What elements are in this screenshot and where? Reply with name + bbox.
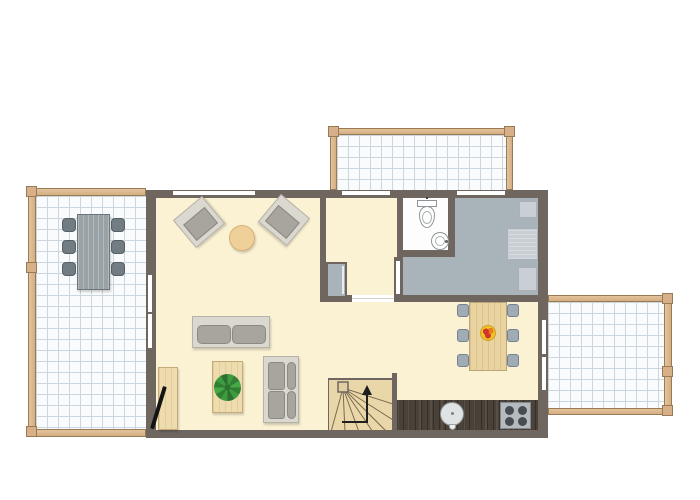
chaise-sofa [263,356,299,423]
left-terrace-rail-left [28,188,36,437]
closet-door-line [342,266,344,294]
dining-chair [507,329,519,342]
terrace-door-right-lower [542,357,546,390]
railing-post [328,126,339,137]
bedroom-cabinet [518,267,537,291]
sink-drain [451,412,454,415]
railing-post [662,405,673,416]
outdoor-chair [62,218,76,232]
railing-post [504,126,515,137]
floor-plan-canvas [0,0,700,500]
stove-burner [518,406,527,415]
outer-wall-right [538,190,548,438]
top-balcony-rail-right [506,128,513,190]
bedroom-floor-entry [400,257,455,295]
sofa [192,316,270,348]
bedroom-door-opening [396,261,400,294]
sink-tap [445,240,448,243]
bedroom-cabinet [519,201,537,218]
bathroom-sink [431,232,449,250]
outdoor-chair [111,262,125,276]
left-terrace-rail-bottom [28,429,146,437]
terrace-door-left-upper [148,275,152,312]
dining-chair [507,304,519,317]
round-side-table [229,225,255,251]
stove-burner [518,417,527,426]
wall-bathroom-right [448,198,455,257]
stove-burner [505,417,514,426]
dining-chair [457,354,469,367]
dining-chair [457,329,469,342]
wall-bathroom-left [397,198,403,257]
stair-newel-post [338,382,348,392]
top-balcony-decking [337,135,506,190]
bedroom-cabinet-large [507,228,538,260]
railing-post [26,426,37,437]
railing-post [26,186,37,197]
outdoor-chair [62,240,76,254]
top-balcony-rail-top [330,128,513,135]
outdoor-chair [111,218,125,232]
kitchen-sink [440,402,464,426]
terrace-door-right-upper [542,320,546,354]
toilet [417,200,437,229]
fruit-bowl [480,325,496,341]
top-balcony-rail-left [330,128,337,190]
outdoor-chair [62,262,76,276]
balcony-door-hallway [342,191,390,195]
potted-plant [214,374,241,401]
outdoor-chair [111,240,125,254]
right-terrace-rail-right [664,295,672,415]
left-terrace-rail-top [28,188,146,196]
wall-bathroom-bottom [397,250,455,257]
railing-post [662,293,673,304]
right-terrace-rail-bottom [548,408,672,415]
chaise-cushion [268,362,285,390]
railing-post [662,366,673,377]
dining-chair [457,304,469,317]
window-living-top [173,191,255,195]
sofa-cushion [197,325,231,344]
right-terrace-rail-top [548,295,672,302]
sink-bowl-inner [435,236,445,246]
window-bedroom-top [457,191,505,195]
hallway-door-leaf [352,298,397,299]
sofa-cushion [232,325,266,344]
outdoor-dining-table [77,214,110,290]
railing-post [26,262,37,273]
stove-burner [505,406,514,415]
staircase [328,378,392,430]
stove [500,402,531,429]
chaise-back-pillow [287,391,296,419]
chaise-back-pillow [287,362,296,390]
hallway-closet [326,262,347,298]
right-terrace-decking [548,302,664,408]
dining-chair [507,354,519,367]
toilet-bowl-inner [422,211,432,224]
chaise-cushion [268,391,285,419]
hallway-door-opening [352,295,397,302]
terrace-door-left-lower [148,314,152,348]
toilet-flush-button [426,197,428,199]
